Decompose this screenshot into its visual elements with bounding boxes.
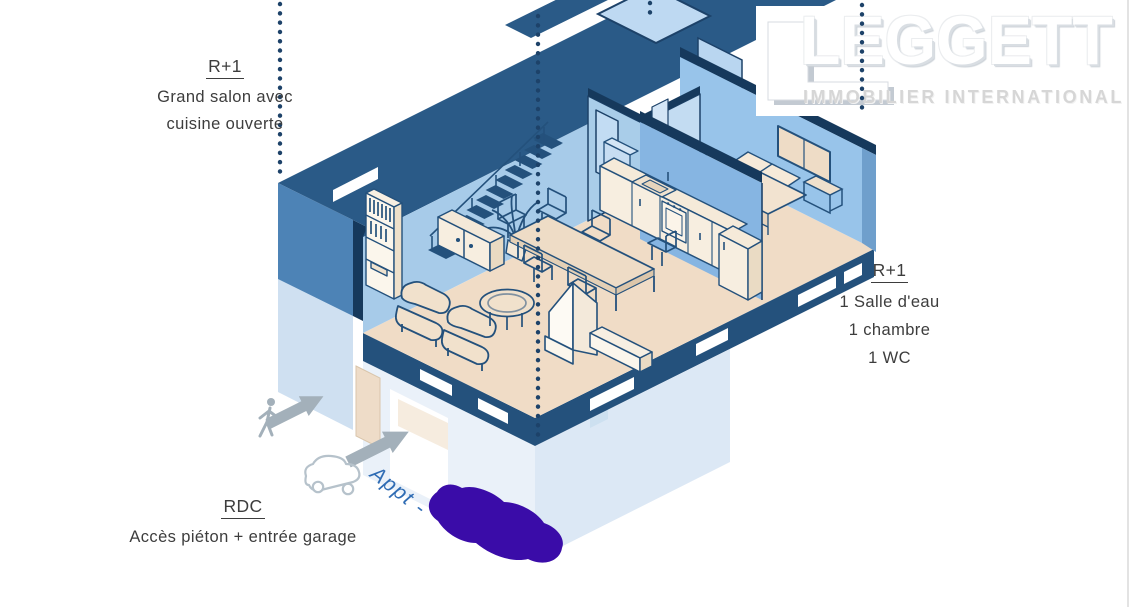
label-ground-floor: RDC Accès piéton + entrée garage	[118, 496, 368, 551]
floorplan-page: LEGGETT IMMOBILIER INTERNATIONAL R+1 Gra…	[0, 0, 1132, 607]
label-line: 1 chambre	[812, 316, 967, 344]
logo-tagline-text: IMMOBILIER INTERNATIONAL	[803, 87, 1124, 108]
rdc-pedestrian-door	[356, 366, 380, 448]
label-line: Accès piéton + entrée garage	[118, 524, 368, 551]
label-title: R+1	[206, 56, 244, 79]
bookshelf	[366, 189, 402, 299]
page-right-border	[1127, 0, 1129, 607]
label-title: RDC	[221, 496, 264, 519]
logo-brand-text: LEGGETT	[800, 0, 1113, 89]
label-line: cuisine ouverte	[135, 111, 315, 138]
section-line-right	[856, 0, 868, 120]
label-title: R+1	[871, 260, 909, 283]
label-line: 1 WC	[812, 344, 967, 372]
label-upper-floor-left: R+1 Grand salon avec cuisine ouverte	[135, 56, 315, 138]
label-line: 1 Salle d'eau	[812, 288, 967, 316]
leggett-logo: LEGGETT IMMOBILIER INTERNATIONAL	[756, 6, 1128, 116]
label-line: Grand salon avec	[135, 84, 315, 111]
label-upper-floor-right: R+1 1 Salle d'eau 1 chambre 1 WC	[812, 260, 967, 372]
